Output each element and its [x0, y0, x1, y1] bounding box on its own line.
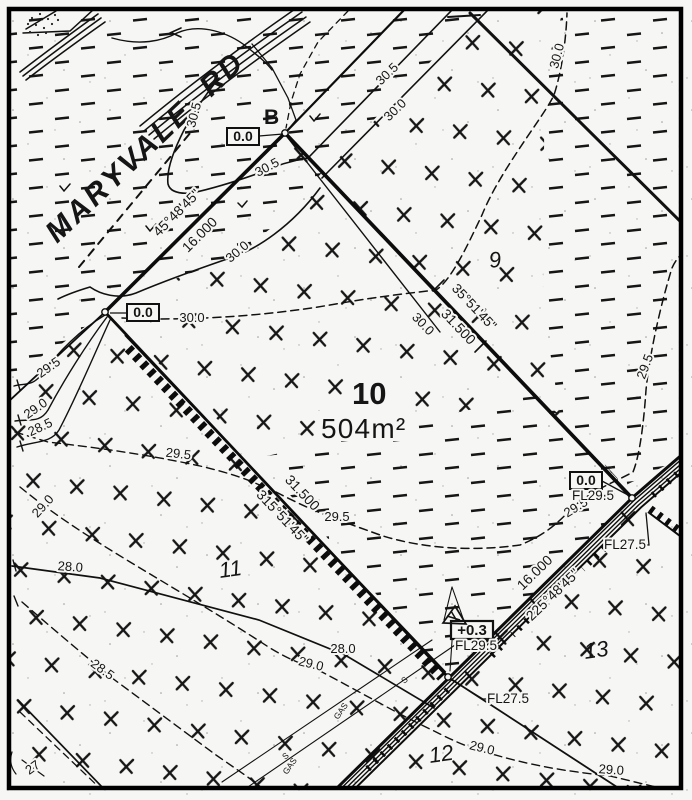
svg-text:10: 10: [352, 376, 386, 411]
svg-text:FL29.5: FL29.5: [455, 638, 497, 653]
svg-text:0.0: 0.0: [233, 128, 253, 144]
svg-text:0.0: 0.0: [576, 472, 596, 488]
svg-text:0.0: 0.0: [133, 304, 153, 320]
svg-text:30.0: 30.0: [179, 310, 204, 325]
svg-text:29.0: 29.0: [598, 761, 624, 778]
svg-text:B: B: [264, 106, 279, 129]
svg-text:29.5: 29.5: [324, 509, 349, 524]
svg-text:12: 12: [427, 740, 455, 768]
svg-text:28.0: 28.0: [330, 641, 355, 656]
svg-text:28.0: 28.0: [57, 558, 83, 575]
svg-text:FL29.5: FL29.5: [572, 488, 614, 503]
svg-text:13: 13: [582, 636, 610, 664]
svg-text:FL27.5: FL27.5: [487, 691, 529, 706]
svg-text:29.5: 29.5: [165, 445, 192, 463]
svg-text:504m²: 504m²: [321, 413, 406, 444]
svg-text:11: 11: [217, 555, 243, 583]
svg-text:FL27.5: FL27.5: [604, 537, 646, 552]
